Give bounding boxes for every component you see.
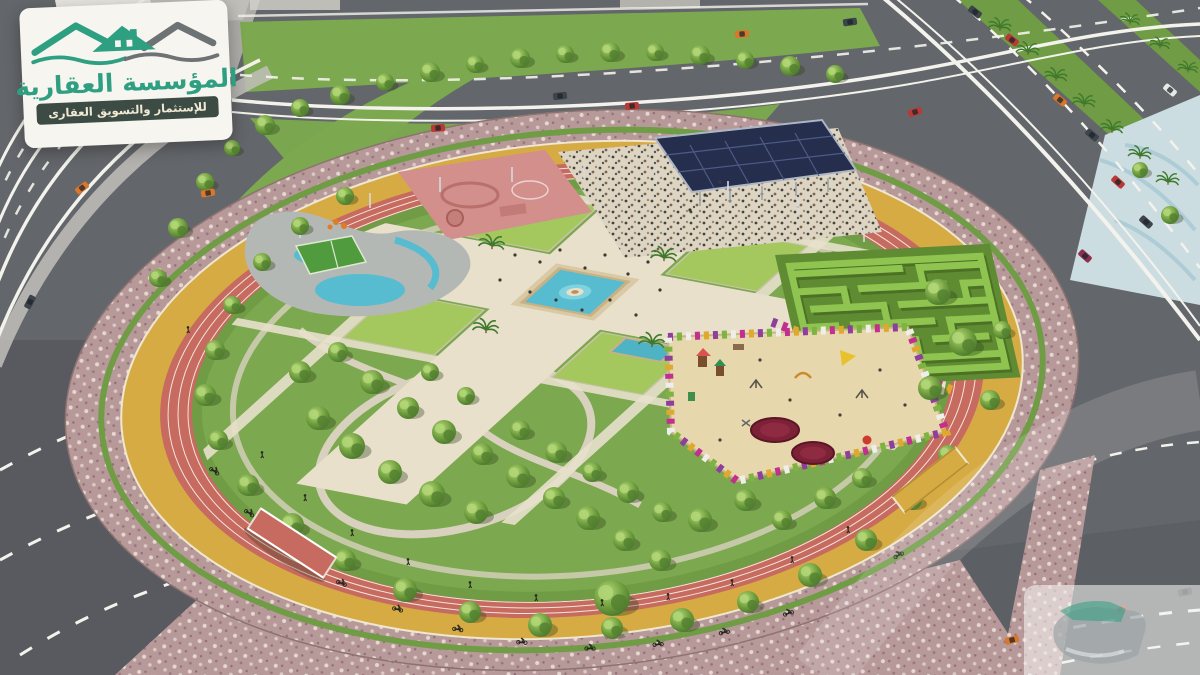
- car: [553, 92, 568, 101]
- logo-card: المؤسسة العقارية للإستثمار والتسويق العق…: [19, 0, 233, 148]
- car: [431, 124, 445, 132]
- car: [625, 102, 640, 110]
- watermark-card: [1024, 585, 1200, 675]
- company-name: المؤسسة العقارية: [15, 65, 239, 101]
- swimming-pool: [315, 274, 405, 306]
- aerial-park-render: المؤسسة العقارية للإستثمار والتسويق العق…: [0, 0, 1200, 675]
- faded-3d-house-logo-icon: [1024, 585, 1200, 675]
- company-tagline: للإستثمار والتسويق العقارى: [36, 96, 219, 125]
- twin-roofs-with-waves-icon: [27, 6, 221, 74]
- car: [735, 30, 749, 38]
